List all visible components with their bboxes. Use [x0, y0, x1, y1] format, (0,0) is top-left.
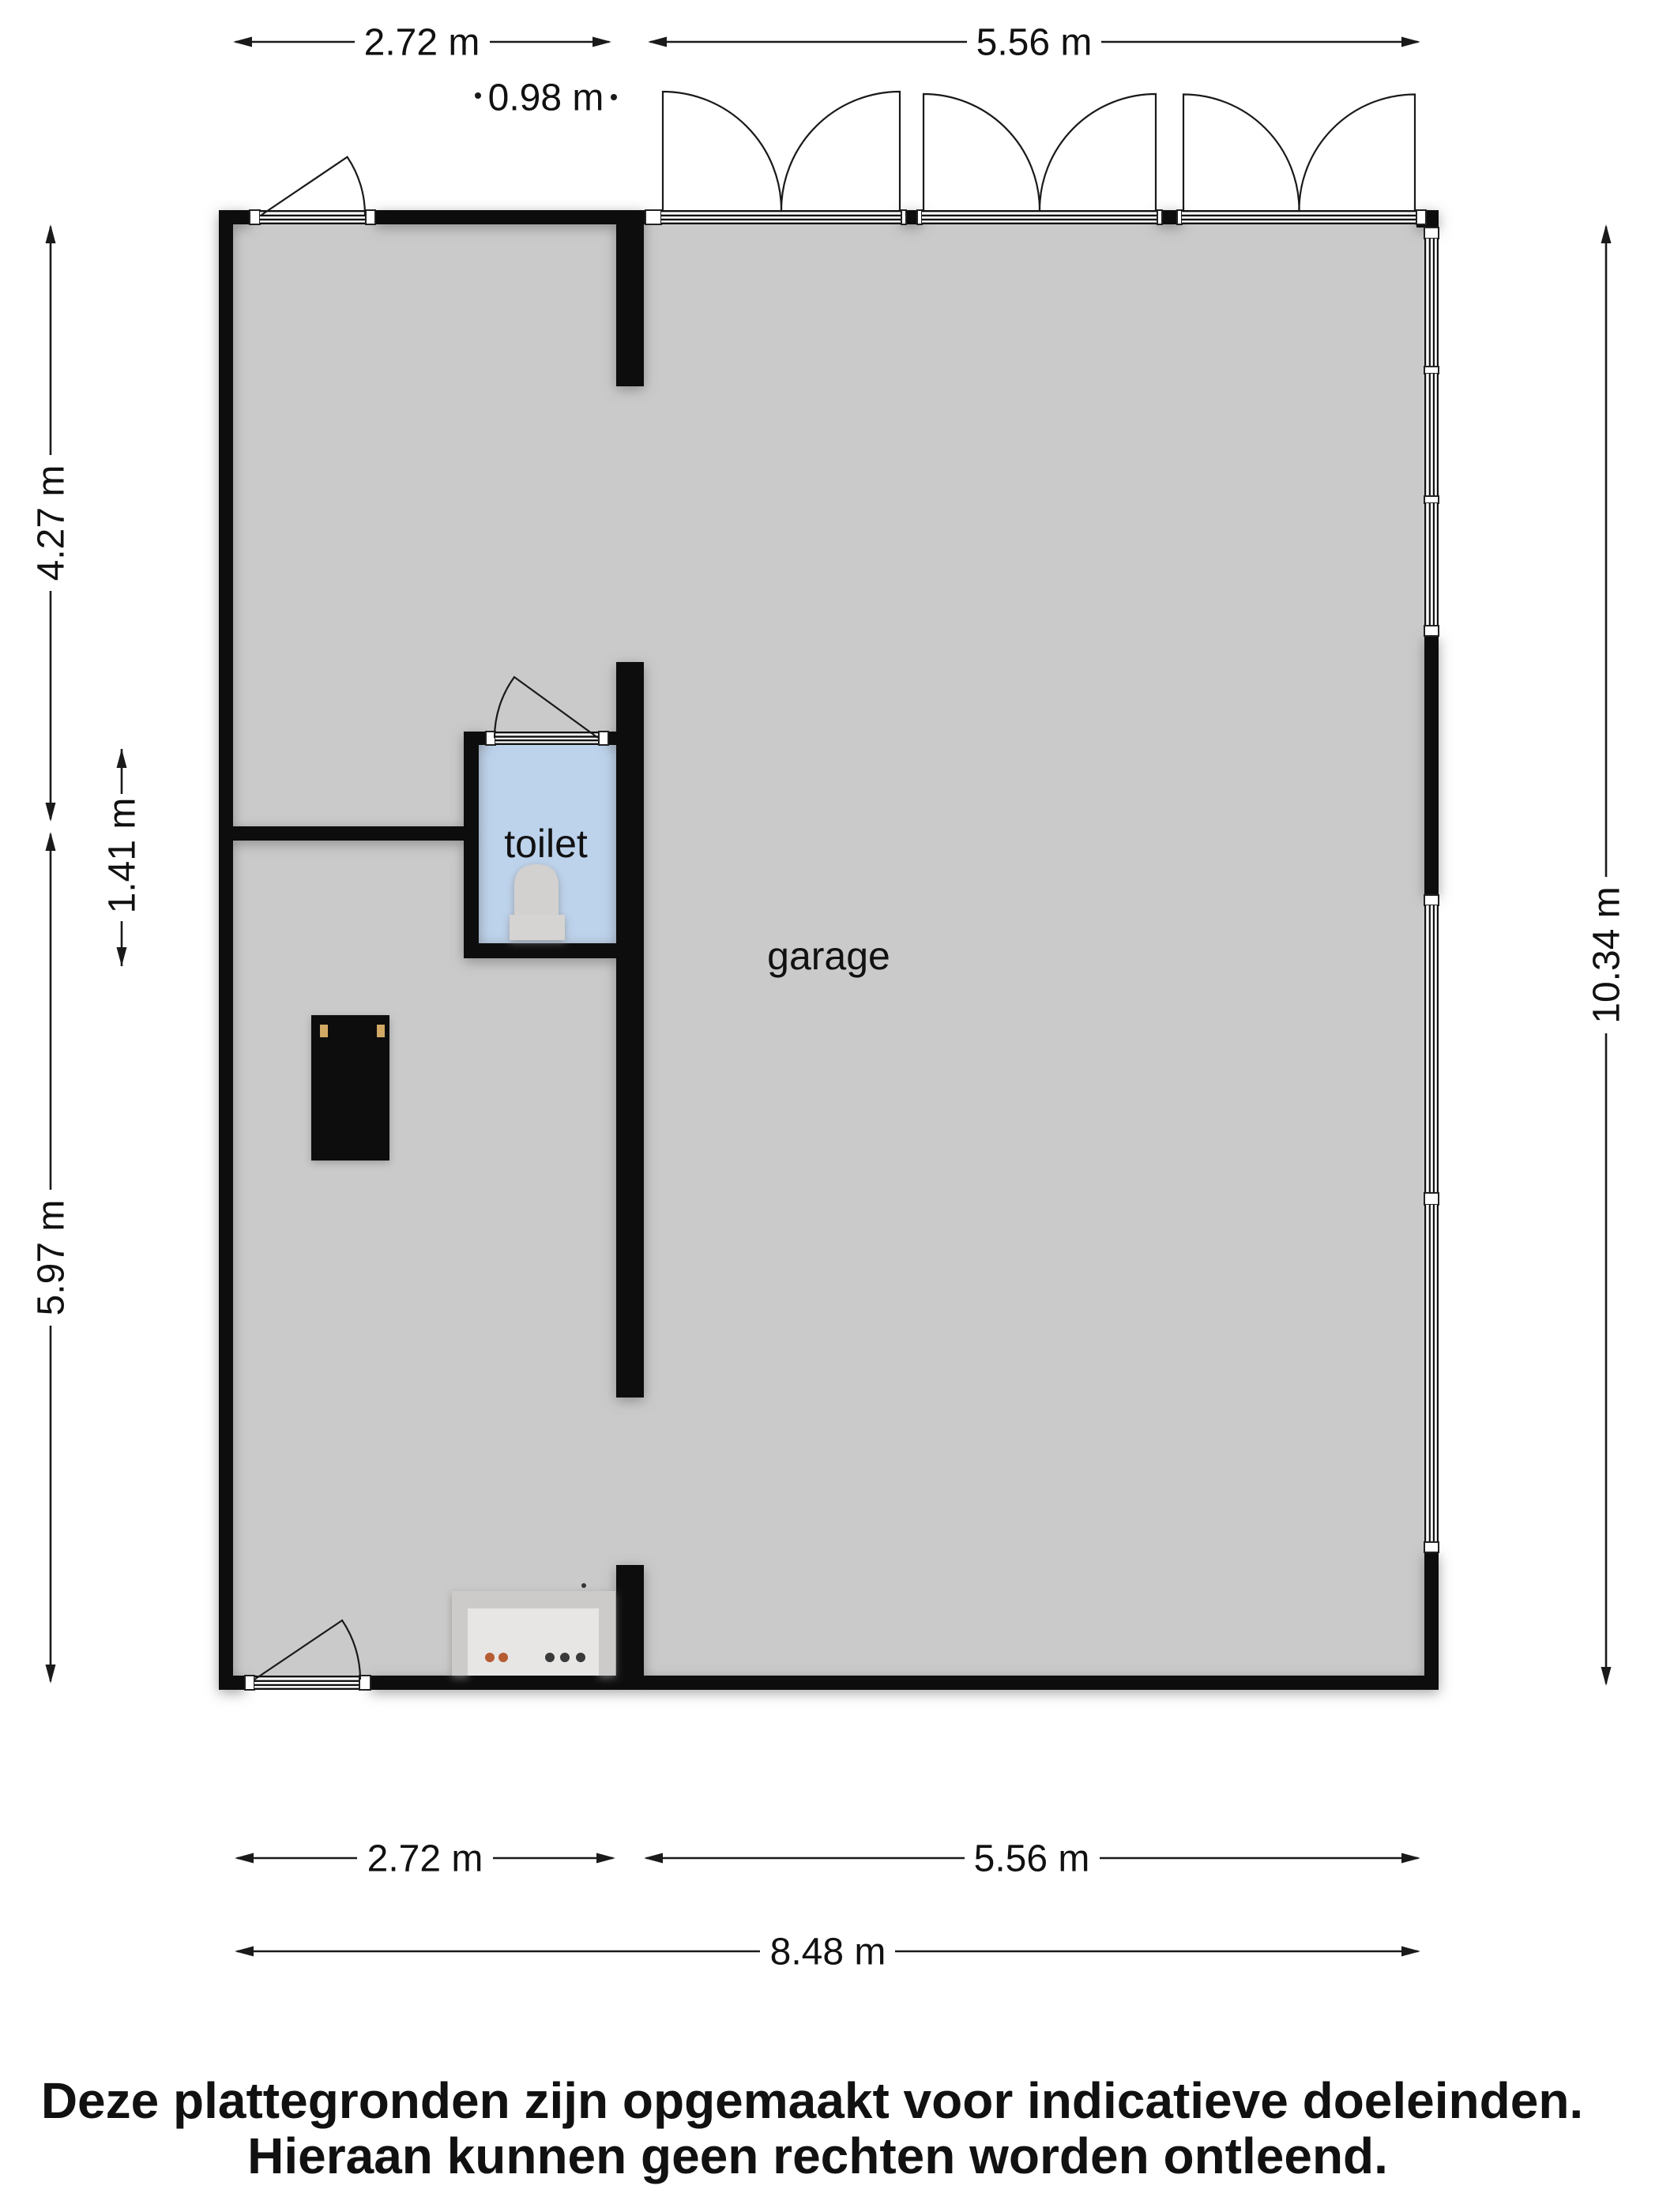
svg-text:5.97 m: 5.97 m — [31, 1200, 73, 1316]
svg-text:2.72 m: 2.72 m — [364, 22, 480, 64]
svg-text:5.56 m: 5.56 m — [976, 22, 1093, 64]
svg-text:8.48 m: 8.48 m — [770, 1932, 886, 1973]
svg-text:Deze plattegronden zijn opgema: Deze plattegronden zijn opgemaakt voor i… — [41, 2072, 1583, 2129]
svg-text:4.27 m: 4.27 m — [31, 465, 73, 581]
svg-text:10.34 m: 10.34 m — [1586, 886, 1628, 1023]
svg-text:0.98 m: 0.98 m — [488, 77, 604, 119]
svg-text:garage: garage — [767, 934, 890, 978]
svg-text:toilet: toilet — [504, 822, 588, 866]
svg-text:5.56 m: 5.56 m — [974, 1838, 1090, 1880]
svg-text:Hieraan kunnen geen rechten wo: Hieraan kunnen geen rechten worden ontle… — [247, 2127, 1388, 2184]
svg-text:1.41 m: 1.41 m — [102, 798, 144, 914]
svg-text:2.72 m: 2.72 m — [367, 1838, 483, 1880]
